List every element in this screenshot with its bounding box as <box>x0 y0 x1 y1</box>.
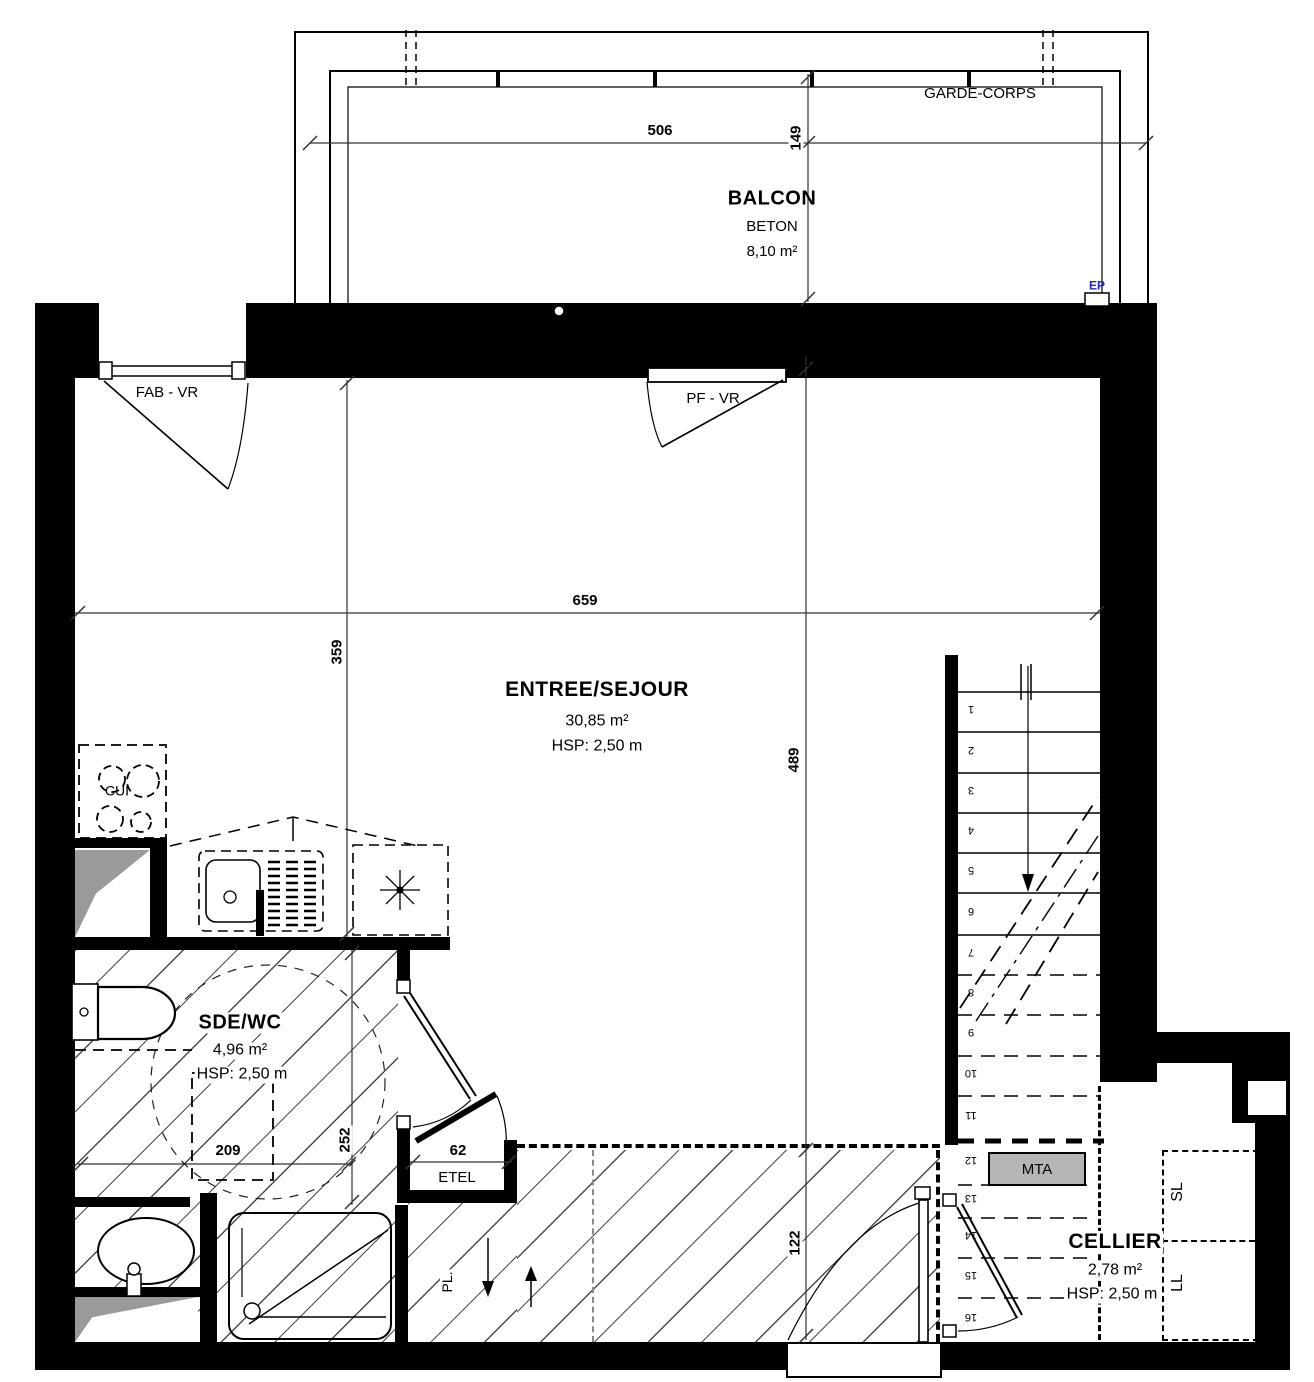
bathroom-depth-dim: 252 <box>338 1125 353 1154</box>
window-opening-fab <box>99 303 246 378</box>
window-pf-label: PF - VR <box>686 391 739 407</box>
living-right-dim: 489 <box>787 745 802 774</box>
left-exterior-wall <box>35 303 75 1370</box>
balcony-width-dim: 506 <box>647 123 672 139</box>
duct-label: PL. <box>440 1269 454 1294</box>
stair-step-number: 1 <box>962 703 980 715</box>
duct-partition-wall <box>395 1205 408 1342</box>
ep-label: EP <box>1089 280 1105 293</box>
living-name: ENTREE/SEJOUR <box>505 679 689 701</box>
cellier-wall-niche <box>1247 1080 1287 1116</box>
appliance-divider <box>1162 1240 1255 1242</box>
bathroom-inner-wall-v <box>200 1193 217 1342</box>
stair-step-number: 8 <box>962 986 980 998</box>
balcony-area: 8,10 m² <box>747 244 798 260</box>
stair-step-number: 15 <box>962 1269 980 1281</box>
entry-zone-top-boundary <box>517 1144 940 1148</box>
stair-step-number: 6 <box>962 905 980 917</box>
mta-label: MTA <box>1022 1161 1053 1178</box>
entry-zone-gray-divider <box>592 1150 594 1342</box>
bathroom-width-dim: 209 <box>213 1143 242 1159</box>
living-width-dim: 659 <box>572 593 597 609</box>
entrance-threshold <box>786 1342 942 1378</box>
bathroom-area: 4,96 m² <box>211 1043 269 1060</box>
stair-step-number: 2 <box>962 744 980 756</box>
stair-step-number: 16 <box>962 1311 980 1323</box>
stair-step-number: 12 <box>962 1154 980 1166</box>
cellier-area: 2,78 m² <box>1086 1263 1144 1280</box>
window-fab-label: FAB - VR <box>136 385 199 401</box>
bathroom-ceiling: HSP: 2,50 m <box>195 1067 290 1084</box>
cellier-name: CELLIER <box>1066 1231 1163 1253</box>
guardrail-label: GARDE-CORPS <box>924 86 1036 102</box>
balcony-depth-dim: 149 <box>789 123 804 152</box>
living-area: 30,85 m² <box>565 714 628 731</box>
balcony-name: BALCON <box>728 189 817 210</box>
closet-label: ETEL <box>438 1170 476 1186</box>
cellier-right-wall <box>1255 1123 1290 1370</box>
mta-box: MTA <box>988 1152 1086 1186</box>
closet-width-dim: 62 <box>450 1143 467 1159</box>
bottom-exterior-wall <box>35 1342 1290 1370</box>
appliance-box-sl-ll <box>1162 1150 1259 1341</box>
stair-step-number: 13 <box>962 1192 980 1204</box>
bathroom-inner-wall-h <box>72 1197 190 1207</box>
stair-step-number: 4 <box>962 824 980 836</box>
stair-stringer-wall <box>945 655 958 1145</box>
shower-tray <box>228 1212 392 1340</box>
stair-step-number: 10 <box>962 1067 980 1079</box>
stair-step-number: 9 <box>962 1026 980 1038</box>
washer-label: LL <box>1170 1272 1186 1294</box>
stair-step-number: 3 <box>962 784 980 796</box>
bathroom-door-stub-top <box>397 950 410 980</box>
living-left-dim: 359 <box>330 637 345 666</box>
floor-plan: MTA <box>0 0 1314 1382</box>
stair-step-number: 14 <box>962 1229 980 1241</box>
kitchen-partition-wall <box>72 937 450 950</box>
cellier-top-wall <box>1157 1032 1290 1063</box>
closet-right-wall <box>504 1140 517 1203</box>
entry-zone-right-boundary <box>936 1150 940 1342</box>
kitchen-label: CUI <box>105 784 129 799</box>
balcony-outline <box>295 30 1148 306</box>
closet-bottom-wall <box>397 1190 517 1203</box>
kitchen-niche-side-wall <box>150 845 167 937</box>
stair-step-number: 11 <box>962 1109 980 1121</box>
dryer-label: SL <box>1170 1180 1186 1204</box>
entry-depth-dim: 122 <box>788 1228 803 1257</box>
entry-floor-hatch <box>517 1150 940 1342</box>
stair-step-number: 7 <box>962 946 980 958</box>
living-ceiling: HSP: 2,50 m <box>552 739 643 756</box>
bathroom-name: SDE/WC <box>197 1013 284 1034</box>
duct-floor-hatch <box>408 1203 517 1342</box>
right-exterior-wall <box>1100 303 1157 1082</box>
basin-nook-bottom-wall <box>72 1287 207 1297</box>
balcony-material: BETON <box>746 219 797 235</box>
stair-step-number: 5 <box>962 864 980 876</box>
cellier-ceiling: HSP: 2,50 m <box>1065 1287 1160 1304</box>
